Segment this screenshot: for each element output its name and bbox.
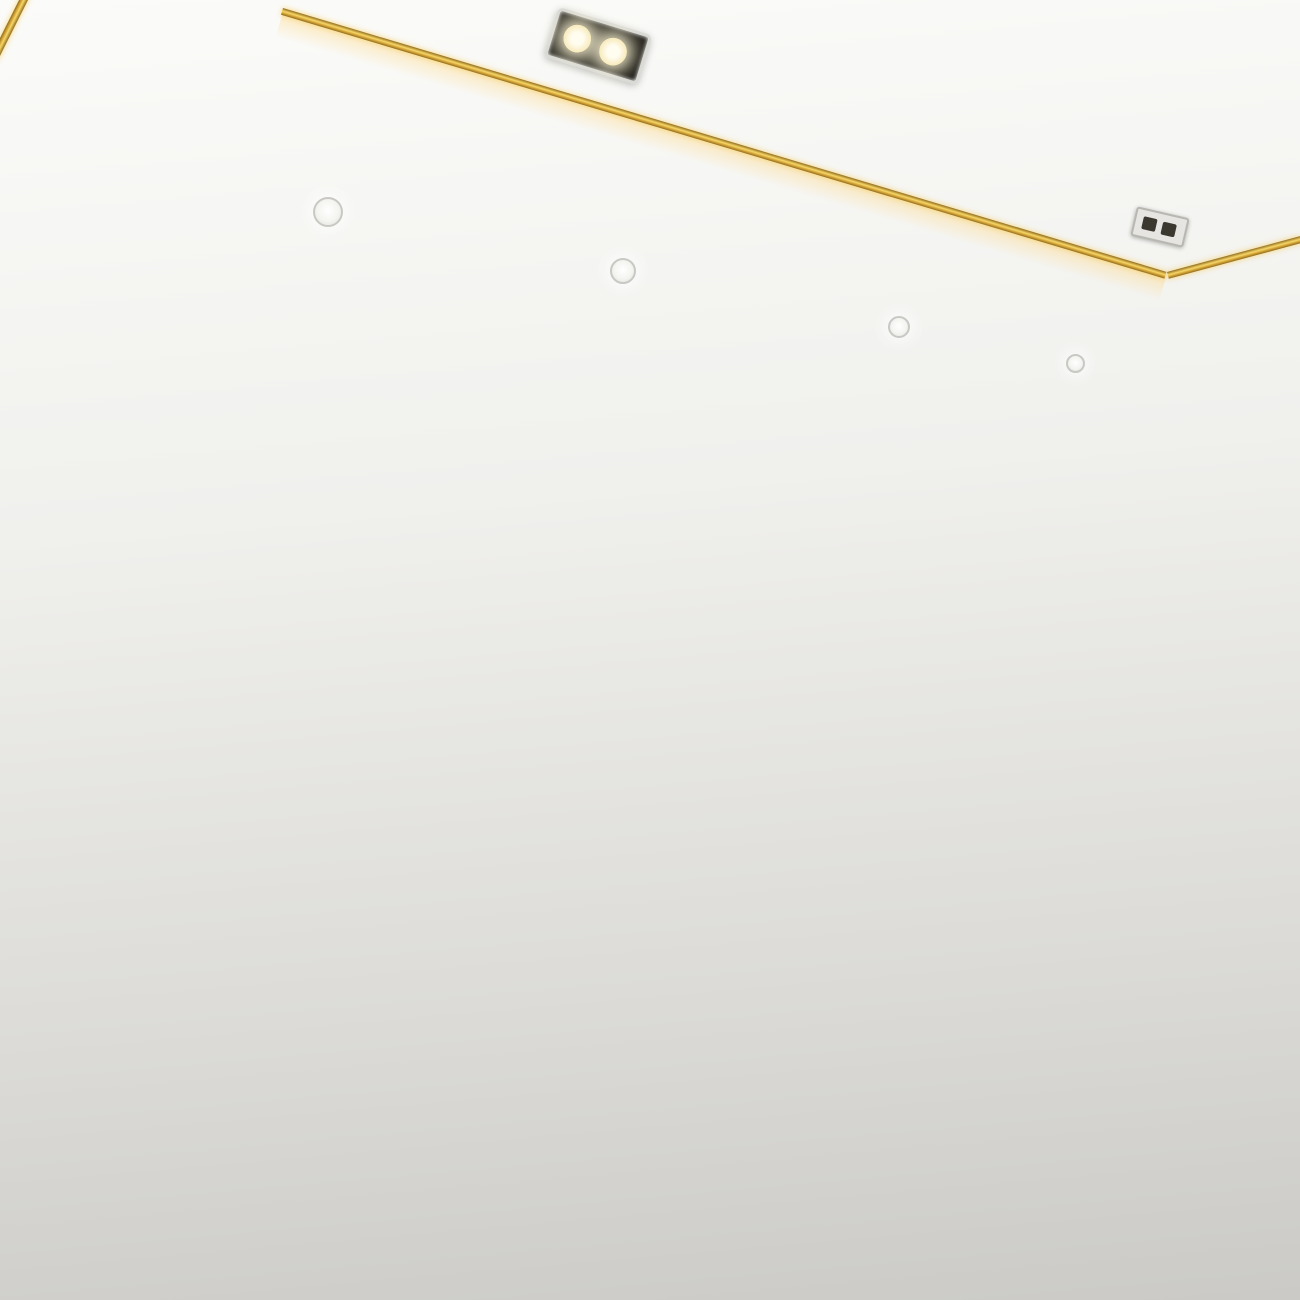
living-room-scene <box>0 0 1300 1300</box>
downlight-1 <box>313 197 343 227</box>
downlight-3 <box>888 316 910 338</box>
spot-lamp-2 <box>596 34 631 69</box>
square-lamp-2 <box>1160 222 1177 238</box>
ceiling-crown-molding <box>0 0 1300 1300</box>
downlight-4 <box>1066 354 1085 373</box>
square-lamp-1 <box>1141 216 1158 232</box>
spot-lamp-1 <box>560 21 595 56</box>
downlight-2 <box>610 258 636 284</box>
